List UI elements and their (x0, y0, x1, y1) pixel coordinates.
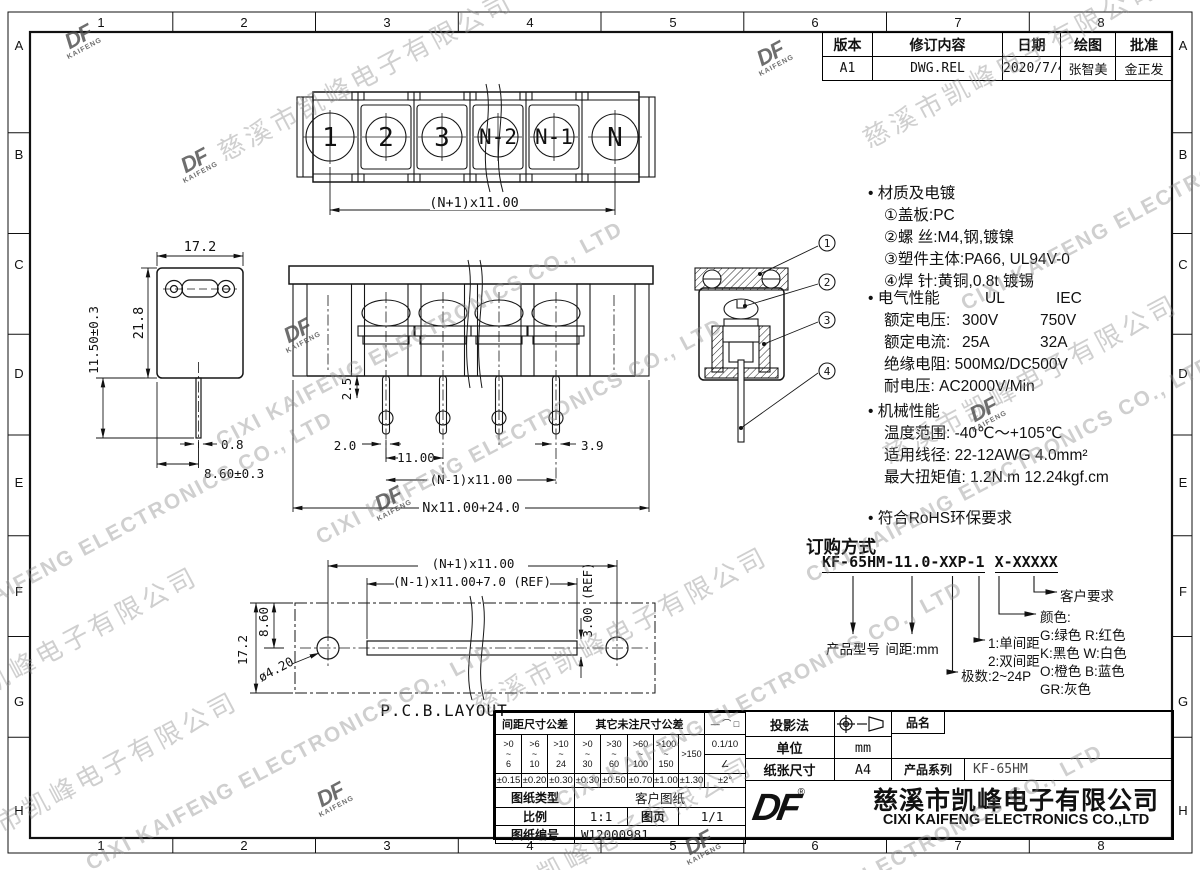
side-view-texts: 17.2 21.8 11.50±0.3 0.8 8.60±0.3 (86, 239, 264, 481)
mechanical-item: 最大扭矩值: 1.2N.m 12.24kgf.cm (868, 467, 1180, 489)
zone-col-label: 6 (811, 15, 818, 30)
dim-pcb-height: 17.2 (235, 635, 250, 665)
zone-col-label: 6 (811, 838, 818, 853)
ordering-color-row: K:黑色 W:白色 (1040, 642, 1127, 662)
electrical-row-label: 额定电压: (884, 310, 962, 332)
dim-2-5: 2.5 (339, 378, 354, 401)
rev-header-drawn: 绘图 (1061, 33, 1116, 57)
revision-table: 版本 修订内容 日期 绘图 批准 A1 DWG.REL 2020/7/4 张智美… (822, 32, 1172, 81)
section-view (695, 235, 835, 442)
zone-col-label: 7 (954, 838, 961, 853)
material-item: ②螺 丝:M4,钢,镀镍 (868, 227, 1180, 249)
tol-range: >0~30 (575, 735, 601, 774)
projection-label: 投影法 (745, 712, 835, 737)
material-title: • 材质及电镀 (868, 183, 1180, 205)
tol-range-150: >150 (679, 735, 705, 774)
zone-col-label: 8 (1097, 838, 1104, 853)
zone-row-label: G (1178, 694, 1188, 709)
mechanical-item: 适用线径: 22-12AWG 4.0mm² (868, 445, 1180, 467)
terminal-label: N (607, 123, 623, 153)
dim-pin-offset: 8.60±0.3 (204, 466, 264, 481)
company-logo: DF® (753, 787, 805, 830)
rev-header-date: 日期 (1003, 33, 1061, 57)
rev-drawn: 张智美 (1061, 57, 1116, 81)
rev-approved: 金正发 (1116, 57, 1173, 81)
break-lines (467, 260, 483, 388)
zone-row-label: B (15, 147, 24, 162)
company-area: DF® 慈溪市凯峰电子有限公司 CIXI KAIFENG ELECTRONICS… (745, 781, 1172, 838)
page-value: 1/1 (679, 808, 746, 826)
electrical-row-ul: 25A (962, 332, 1040, 354)
company-name-en: CIXI KAIFENG ELECTRONICS CO.,LTD (860, 812, 1172, 828)
front-view-texts: 2.5 2.0 11.00 (N-1)x11.00 Nx11.00+24.0 3… (334, 378, 604, 516)
terminal-label: 2 (378, 123, 394, 153)
series-label: 产品系列 (892, 759, 965, 781)
ordering-label-color: 颜色: (1040, 606, 1071, 626)
tol-value: ±1.00 (654, 774, 679, 788)
side-view (96, 252, 243, 468)
electrical-title: • 电气性能 (868, 288, 985, 310)
callout-4: 4 (824, 365, 831, 378)
tol-range: >6~10 (522, 735, 548, 774)
drawing-sheet: 1 2 3 4 5 6 7 8 1 2 3 4 5 6 7 8 A B C D … (0, 0, 1200, 870)
tol-flatness: 0.1/10 (705, 735, 746, 755)
electrical-col-ul: UL (985, 288, 1056, 310)
side-dims (96, 252, 243, 468)
tol-angle-value: ±2° (705, 774, 746, 788)
tol-range: >0~6 (496, 735, 522, 774)
projection-symbol-cell (835, 712, 892, 737)
electrical-item: 耐电压: AC2000V/Min (868, 376, 1180, 398)
zone-col-label: 8 (1097, 15, 1104, 30)
zone-col-label: 3 (383, 838, 390, 853)
zone-row-label: E (1179, 475, 1188, 490)
rev-header-content: 修订内容 (873, 33, 1003, 57)
terminal-label: N-1 (535, 125, 573, 149)
terminal-label: 1 (322, 123, 338, 153)
solder-pins (379, 376, 563, 434)
zone-row-label: G (14, 694, 24, 709)
page-label: 图页 (628, 808, 679, 826)
tol-range: >10~24 (548, 735, 575, 774)
tol-range: >60~100 (628, 735, 654, 774)
tol-value: ±0.15 (496, 774, 522, 788)
terminal-cells (303, 105, 642, 169)
part-number-main: KF-65HM-11.0-XXP-1 (822, 553, 985, 573)
zone-row-label: A (1179, 38, 1188, 53)
zone-col-label: 1 (97, 838, 104, 853)
zone-col-label: 3 (383, 15, 390, 30)
dim-n-1: (N-1)x11.00 (430, 472, 513, 487)
zone-row-label: D (14, 366, 23, 381)
dim-pcb-top: (N+1)x11.00 (432, 556, 515, 571)
material-item: ③塑件主体:PA66, UL94V-0 (868, 249, 1180, 271)
paper-size-label: 纸张尺寸 (745, 759, 835, 781)
mechanical-item: 温度范围: -40℃～+105℃ (868, 423, 1180, 445)
ordering-label-customer: 客户要求 (1060, 585, 1114, 605)
doc-type-value: 客户图纸 (575, 788, 746, 808)
zone-row-label: A (15, 38, 24, 53)
pcb-texts: (N+1)x11.00 (N-1)x11.00+7.0 (REF) 3.00 (… (235, 556, 595, 720)
dim-pcb-center: 8.60 (256, 607, 271, 637)
series-value: KF-65HM (965, 759, 1172, 781)
electrical-row-iec: 750V (1040, 310, 1076, 332)
pcb-layout-label: P.C.B.LAYOUT (380, 701, 508, 720)
ordering-label-single: 1:单间距 (988, 632, 1040, 652)
doc-number-label: 图纸编号 (496, 826, 575, 844)
rev-content: DWG.REL (873, 57, 1003, 81)
part-number-suffix: X-XXXXX (995, 553, 1058, 573)
tol-value: ±0.30 (548, 774, 575, 788)
dim-pcb-hole: ø4.20 (256, 654, 296, 685)
doc-type-label: 图纸类型 (496, 788, 575, 808)
tol-value: ±1.30 (679, 774, 705, 788)
tolerance-table: 间距尺寸公差 其它未注尺寸公差 — ⌒ □ >0~6 >6~10 >10~24 … (495, 712, 746, 844)
zone-col-label: 7 (954, 15, 961, 30)
electrical-spec-block: • 电气性能 UL IEC 额定电压: 300V 750V 额定电流: 25A … (868, 288, 1180, 398)
product-name-label: 品名 (892, 712, 945, 734)
tol-angle-symbol: ∠ (705, 755, 746, 774)
callout-1: 1 (824, 237, 831, 250)
first-angle-projection-icon (836, 713, 890, 735)
ordering-color-row: O:橙色 B:蓝色 (1040, 660, 1125, 680)
title-block: 间距尺寸公差 其它未注尺寸公差 — ⌒ □ >0~6 >6~10 >10~24 … (493, 710, 1174, 840)
tol-header-pitch: 间距尺寸公差 (496, 713, 575, 735)
material-item: ①盖板:PC (868, 205, 1180, 227)
electrical-col-iec: IEC (1056, 288, 1082, 310)
zone-col-label: 1 (97, 15, 104, 30)
rev-date: 2020/7/4 (1003, 57, 1061, 81)
ordering-label-double: 2:双间距 (988, 650, 1040, 670)
zone-col-label: 4 (526, 15, 533, 30)
zone-row-label: B (1179, 147, 1188, 162)
terminal-label: N-2 (479, 125, 517, 149)
rohs-note: • 符合RoHS环保要求 (868, 508, 1180, 530)
zone-col-label: 5 (669, 15, 676, 30)
mechanical-spec-block: • 机械性能 温度范围: -40℃～+105℃ 适用线径: 22-12AWG 4… (868, 401, 1180, 489)
rev-version: A1 (823, 57, 873, 81)
zone-col-label: 2 (240, 838, 247, 853)
rev-header-version: 版本 (823, 33, 873, 57)
tol-value: ±0.30 (575, 774, 601, 788)
zone-row-label: H (14, 803, 23, 818)
electrical-item: 绝缘电阻: 500MΩ/DC500V (868, 354, 1180, 376)
dim-overall-top: (N+1)x11.00 (429, 195, 518, 211)
callout-2: 2 (824, 276, 831, 289)
tol-value: ±0.50 (601, 774, 628, 788)
scale-label: 比例 (496, 808, 575, 826)
dim-2-0: 2.0 (334, 438, 357, 453)
doc-number-value: W12000981 (575, 826, 746, 844)
dim-pcb-ref: (N-1)x11.00+7.0 (REF) (393, 574, 551, 589)
zone-row-label: C (14, 257, 23, 272)
ordering-label-pitch: 间距:mm (884, 638, 940, 658)
unit-value: mm (835, 737, 892, 759)
material-spec-block: • 材质及电镀 ①盖板:PC ②螺 丝:M4,钢,镀镍 ③塑件主体:PA66, … (868, 183, 1180, 293)
dim-11: 11.00 (397, 450, 435, 465)
zone-row-label: E (15, 475, 24, 490)
ordering-part-number: KF-65HM-11.0-XXP-1X-XXXXX (822, 553, 1058, 573)
scale-value: 1:1 (575, 808, 628, 826)
electrical-row-ul: 300V (962, 310, 1040, 332)
kaifeng-logo-icon: DF (749, 787, 801, 830)
tol-value: ±0.20 (522, 774, 548, 788)
ordering-color-row: GR:灰色 (1040, 678, 1091, 698)
ordering-color-row: G:绿色 R:红色 (1040, 624, 1126, 644)
unit-label: 单位 (745, 737, 835, 759)
rev-header-approved: 批准 (1116, 33, 1173, 57)
dim-total: Nx11.00+24.0 (422, 500, 520, 516)
tol-range: >30~60 (601, 735, 628, 774)
electrical-row-iec: 32A (1040, 332, 1068, 354)
product-name-area: 品名 KF-65HM-11.0-XXP-1X (892, 712, 1172, 759)
centerlines (328, 292, 614, 484)
terminal-label: 3 (434, 123, 450, 153)
section-callout-numbers: 1 2 3 4 (824, 237, 831, 378)
zone-row-label: H (1178, 803, 1187, 818)
dim-pin-width: 0.8 (221, 437, 244, 452)
tol-value: ±0.70 (628, 774, 654, 788)
screw-clamps (358, 300, 584, 344)
mechanical-title: • 机械性能 (868, 401, 1180, 423)
electrical-row-label: 额定电流: (884, 332, 962, 354)
dim-3-9: 3.9 (581, 438, 604, 453)
tol-range: >100~150 (654, 735, 679, 774)
paper-size-value: A4 (835, 759, 892, 781)
ordering-label-model: 产品型号 (825, 638, 881, 658)
dim-side-width: 17.2 (184, 239, 217, 255)
tol-symbols: — ⌒ □ (705, 713, 746, 735)
zone-col-label: 2 (240, 15, 247, 30)
callout-3: 3 (824, 314, 831, 327)
tol-header-other: 其它未注尺寸公差 (575, 713, 705, 735)
dim-side-height: 21.8 (131, 307, 147, 340)
zone-row-label: F (1179, 584, 1187, 599)
zone-row-label: F (15, 584, 23, 599)
dim-pin-length: 11.50±0.3 (86, 306, 101, 374)
dim-pcb-slot: 3.00 (REF) (580, 562, 595, 637)
